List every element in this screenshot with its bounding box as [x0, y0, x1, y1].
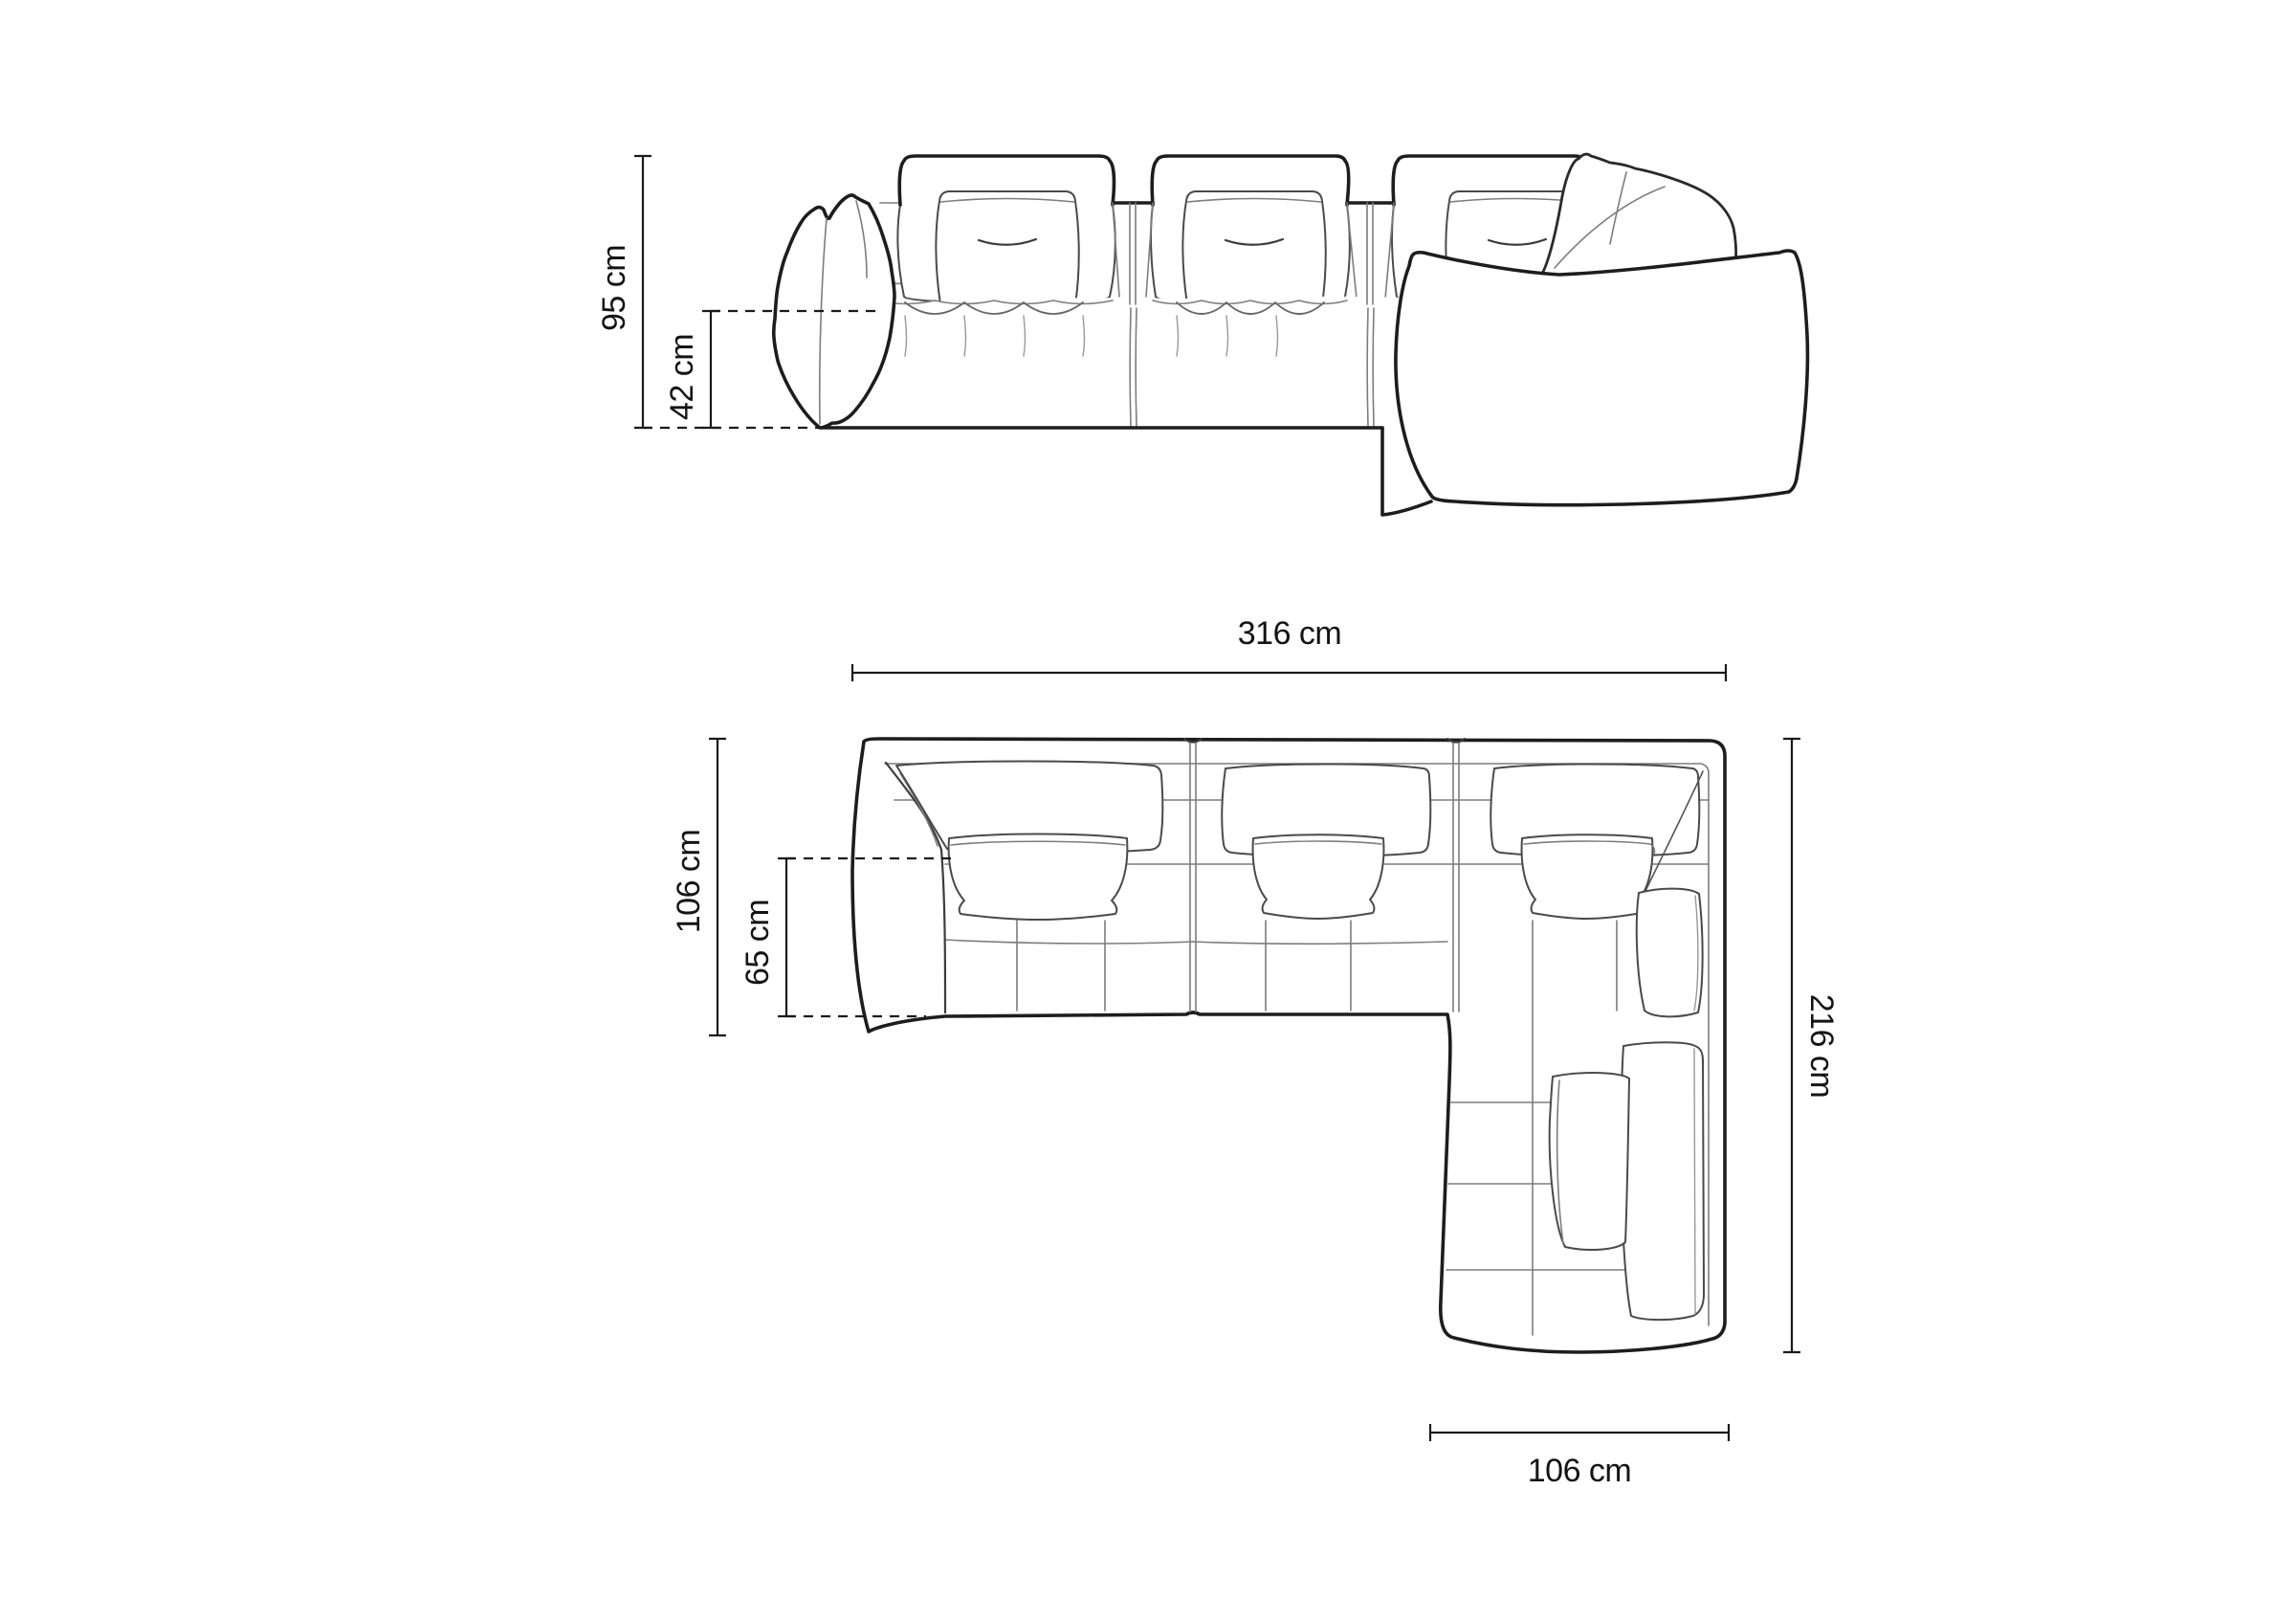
front-pillow: [1182, 191, 1325, 308]
plan-corner-pillow: [1637, 889, 1703, 1017]
top-sofa-drawing: [852, 739, 1725, 1352]
dim-label-total-height: 95 cm: [596, 245, 632, 331]
dim-label-total-length: 216 cm: [1803, 994, 1840, 1099]
front-view: 95 cm 42 cm: [596, 154, 1808, 515]
plan-headrest-pillow: [1522, 834, 1653, 919]
top-view: 316 cm 106 cm 65 cm 216 cm 106 cm: [671, 615, 1840, 1489]
dim-label-seat-depth: 65 cm: [740, 900, 776, 986]
dim-label-chaise-width: 106 cm: [1528, 1453, 1632, 1489]
front-sofa-drawing: [774, 154, 1808, 515]
plan-headrest-pillow: [949, 834, 1128, 921]
dim-label-total-depth: 106 cm: [671, 830, 707, 934]
dim-label-seat-height: 42 cm: [664, 334, 700, 420]
dim-label-total-width: 316 cm: [1238, 615, 1342, 652]
page: { "diagram": { "type": "sofa-dimension-d…: [0, 0, 2296, 1623]
corner-unit-front: [1396, 251, 1808, 505]
chaise-pillow-big: [1622, 1042, 1704, 1320]
plan-headrest-pillow: [1253, 834, 1384, 919]
sofa-dimension-diagram: 95 cm 42 cm: [0, 0, 2296, 1623]
front-pillow: [936, 191, 1078, 308]
